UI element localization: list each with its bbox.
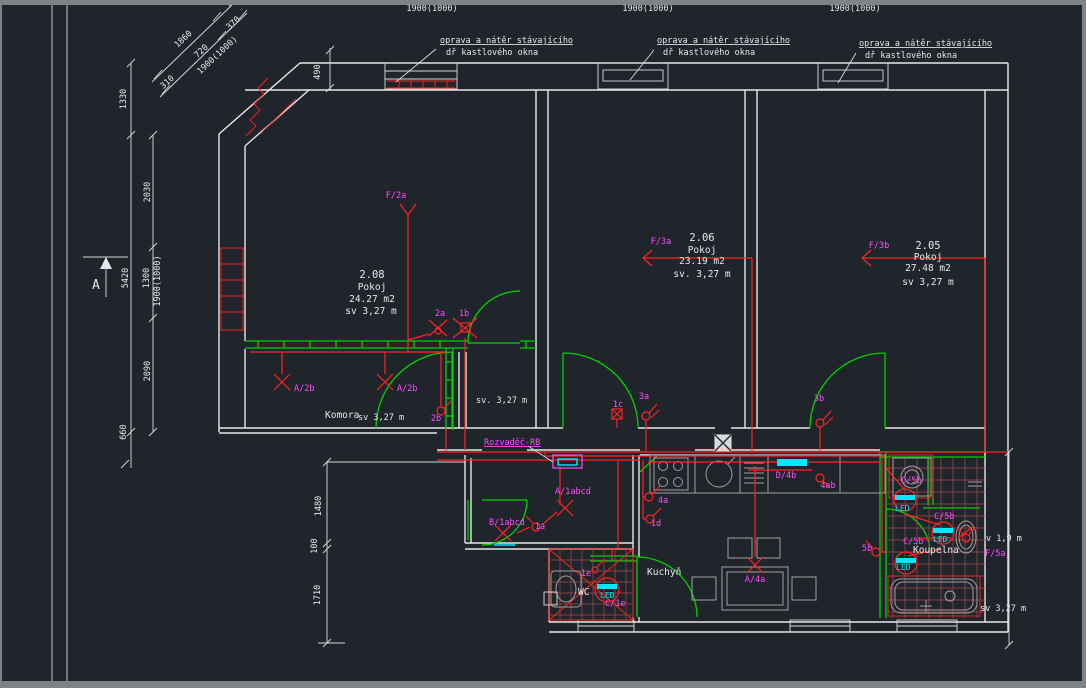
dim-1300: 1300 xyxy=(142,268,152,288)
feed-f5a: F/5a xyxy=(985,549,1005,559)
led-label-1: LED xyxy=(895,504,910,513)
window-note-3-line1: oprava a nátěr stávajícího xyxy=(859,39,992,49)
room-komora-name: Komora xyxy=(325,410,359,421)
room-206-type: Pokoj xyxy=(688,245,717,256)
boundary-lines xyxy=(52,5,67,681)
dim-top-2: 1900(1000) xyxy=(622,4,673,14)
circuit-a4a: A/4a xyxy=(745,575,765,585)
dim-1860: 1860 xyxy=(173,29,195,50)
room-206-area: 23.19 m2 xyxy=(679,256,725,267)
room-bathroom-name: Koupelna xyxy=(913,545,959,556)
point-1d: 1d xyxy=(651,519,661,529)
dining-table xyxy=(692,538,816,610)
dim-5420: 5420 xyxy=(121,268,131,288)
circuit-a2b-2: A/2b xyxy=(397,384,417,394)
kitchen-counter xyxy=(650,455,885,493)
dim-2090: 2090 xyxy=(143,361,153,381)
wiring-layer xyxy=(250,204,1008,616)
panel-label: Rozvaděč-RB xyxy=(484,437,540,448)
room-komora-height: sv 3,27 m xyxy=(358,413,404,423)
dim-100: 100 xyxy=(310,538,320,553)
circuit-b1abcd: B/1abcd xyxy=(489,518,525,528)
room-206-height: sv. 3,27 m xyxy=(673,269,730,280)
window-frame-left xyxy=(0,0,2,688)
dim-490: 490 xyxy=(313,64,323,79)
room-208-number: 2.08 xyxy=(359,269,384,281)
circuit-a1abcd: A/1abcd xyxy=(555,487,591,497)
point-5b: 5b xyxy=(862,544,872,554)
room-208-height: sv 3,27 m xyxy=(345,306,397,317)
window-frame-bottom xyxy=(0,681,1086,688)
sink-icon xyxy=(706,461,732,487)
dim-1480: 1480 xyxy=(314,496,324,516)
room-wc-name: WC xyxy=(578,587,589,598)
basin-height: v 1,9 m xyxy=(986,534,1022,544)
led-label-wc: LED xyxy=(600,591,615,600)
window-note-2-line2: dř kastlového okna xyxy=(663,47,755,58)
room-205-type: Pokoj xyxy=(914,252,943,263)
point-3a: 3a xyxy=(639,392,649,402)
dim-2030: 2030 xyxy=(143,182,153,202)
dim-1900-left: 1900(1000) xyxy=(153,255,163,306)
stove-icon xyxy=(654,458,688,490)
circuit-c5b-2: C/5b xyxy=(934,512,954,522)
feed-f3b: F/3b xyxy=(869,241,889,251)
window-note-2-line1: oprava a nátěr stávajícího xyxy=(657,36,790,46)
point-3b: 3b xyxy=(814,394,824,404)
point-2b: 2b xyxy=(431,414,441,424)
point-1e: 1e xyxy=(581,569,591,579)
circuit-a2b-1: A/2b xyxy=(294,384,314,394)
circuit-c1e: C/1e xyxy=(605,599,625,609)
room-205-number: 2.05 xyxy=(915,240,940,252)
window-note-1-line1: oprava a nátěr stávajícího xyxy=(440,36,573,46)
window-note-3-line2: dř kastlového okna xyxy=(865,50,957,61)
section-mark-a: A xyxy=(92,278,100,293)
point-1b: 1b xyxy=(459,309,469,319)
dim-660: 660 xyxy=(119,424,129,439)
point-4ab: 4ab xyxy=(820,481,835,491)
bathtub-icon xyxy=(891,579,977,613)
room-208-area: 24.27 m2 xyxy=(349,294,395,305)
wc-tiles xyxy=(549,549,633,620)
point-2a: 2a xyxy=(435,309,445,319)
feed-f2a: F/2a xyxy=(386,191,406,201)
room-205-area: 27.48 m2 xyxy=(905,263,951,274)
room-lobby-height: sv. 3,27 m xyxy=(476,396,527,406)
cad-drawing-viewport[interactable]: 1900(1000) 1900(1000) 1900(1000) oprava … xyxy=(0,0,1086,688)
dim-top-3: 1900(1000) xyxy=(829,4,880,14)
dim-1710: 1710 xyxy=(313,585,323,605)
floor-plan-canvas[interactable]: 1900(1000) 1900(1000) 1900(1000) oprava … xyxy=(0,0,1086,688)
room-206-number: 2.06 xyxy=(689,232,714,244)
room-bathroom-height: sv 3,27 m xyxy=(980,604,1026,614)
point-4a: 4a xyxy=(658,496,668,506)
led-label-2: LED xyxy=(933,535,948,544)
point-1c: 1c xyxy=(613,400,623,410)
led-label-3: LED xyxy=(896,563,911,572)
window-note-1-line2: dř kastlového okna xyxy=(446,47,538,58)
window-frame-top xyxy=(0,0,1086,5)
d4b-light-bar xyxy=(777,459,807,466)
point-1a: 1a xyxy=(535,522,545,532)
circuit-c5b-1: C/5b xyxy=(901,476,921,486)
window-frame-right xyxy=(1082,0,1086,688)
room-205-height: sv 3,27 m xyxy=(902,277,954,288)
feed-f3a: F/3a xyxy=(651,237,671,247)
dim-1330: 1330 xyxy=(119,89,129,109)
room-208-type: Pokoj xyxy=(358,282,387,293)
room-kitchen-name: Kuchyň xyxy=(647,567,681,578)
dim-top-1: 1900(1000) xyxy=(406,4,457,14)
circuit-d4b: D/4b xyxy=(776,471,796,481)
cyan-elements xyxy=(494,459,953,589)
red-hatch xyxy=(221,78,455,330)
dim-310: 310 xyxy=(159,74,177,92)
